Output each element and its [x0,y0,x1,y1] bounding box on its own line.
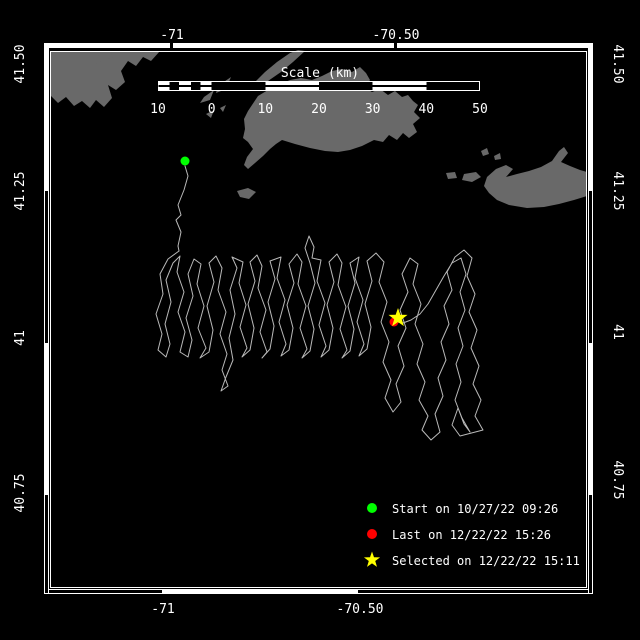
axis-right-lat-2: 41.25 [610,171,625,210]
legend-last-label: Last on 12/22/22 15:26 [392,528,551,542]
frame-band-top [44,43,593,48]
tracking-map-page: -71 -70.50 -71 -70.50 41.50 41.25 41 40.… [0,0,640,640]
legend-selected-label: Selected on 12/22/22 15:11 [392,554,580,568]
axis-right-lat-1: 41.50 [610,44,625,83]
frame-tick-gap-top-2 [394,43,397,48]
scale-tick-4: 30 [365,102,381,117]
frame-band-right-white-1 [588,43,593,191]
frame-band-left-white-2 [44,343,49,495]
scale-tick-1: 0 [208,102,216,117]
legend-last-icon [367,529,377,539]
scale-tick-5: 40 [418,102,434,117]
axis-left-lat-4: 40.75 [13,473,28,512]
axis-right-lat-3: 41 [610,324,625,340]
axis-top-lon-2: -70.50 [373,28,420,43]
start-position-marker[interactable] [181,157,190,166]
axis-left-lat-1: 41.50 [13,44,28,83]
frame-band-bottom-white [162,589,358,594]
scale-tick-2: 10 [257,102,273,117]
axis-bottom-lon-1: -71 [151,602,174,617]
axis-bottom-lon-2: -70.50 [337,602,384,617]
axis-top-lon-1: -71 [160,28,183,43]
legend-start-icon [367,503,377,513]
axis-left-lat-2: 41.25 [13,171,28,210]
frame-tick-gap-top-1 [170,43,173,48]
legend-start-label: Start on 10/27/22 09:26 [392,502,558,516]
axis-right-lat-4: 40.75 [610,460,625,499]
legend: Start on 10/27/22 09:26 Last on 12/22/22… [364,502,580,568]
scale-bar-title: Scale (km) [281,66,359,81]
scale-tick-0: 10 [150,102,166,117]
axis-left-lat-3: 41 [13,330,28,346]
scale-bar-midline [159,85,480,87]
scale-tick-3: 20 [311,102,327,117]
frame-band-left-white-1 [44,43,49,191]
scale-tick-6: 50 [472,102,488,117]
frame-band-right-white-2 [588,343,593,495]
map-canvas[interactable]: -71 -70.50 -71 -70.50 41.50 41.25 41 40.… [0,0,640,640]
